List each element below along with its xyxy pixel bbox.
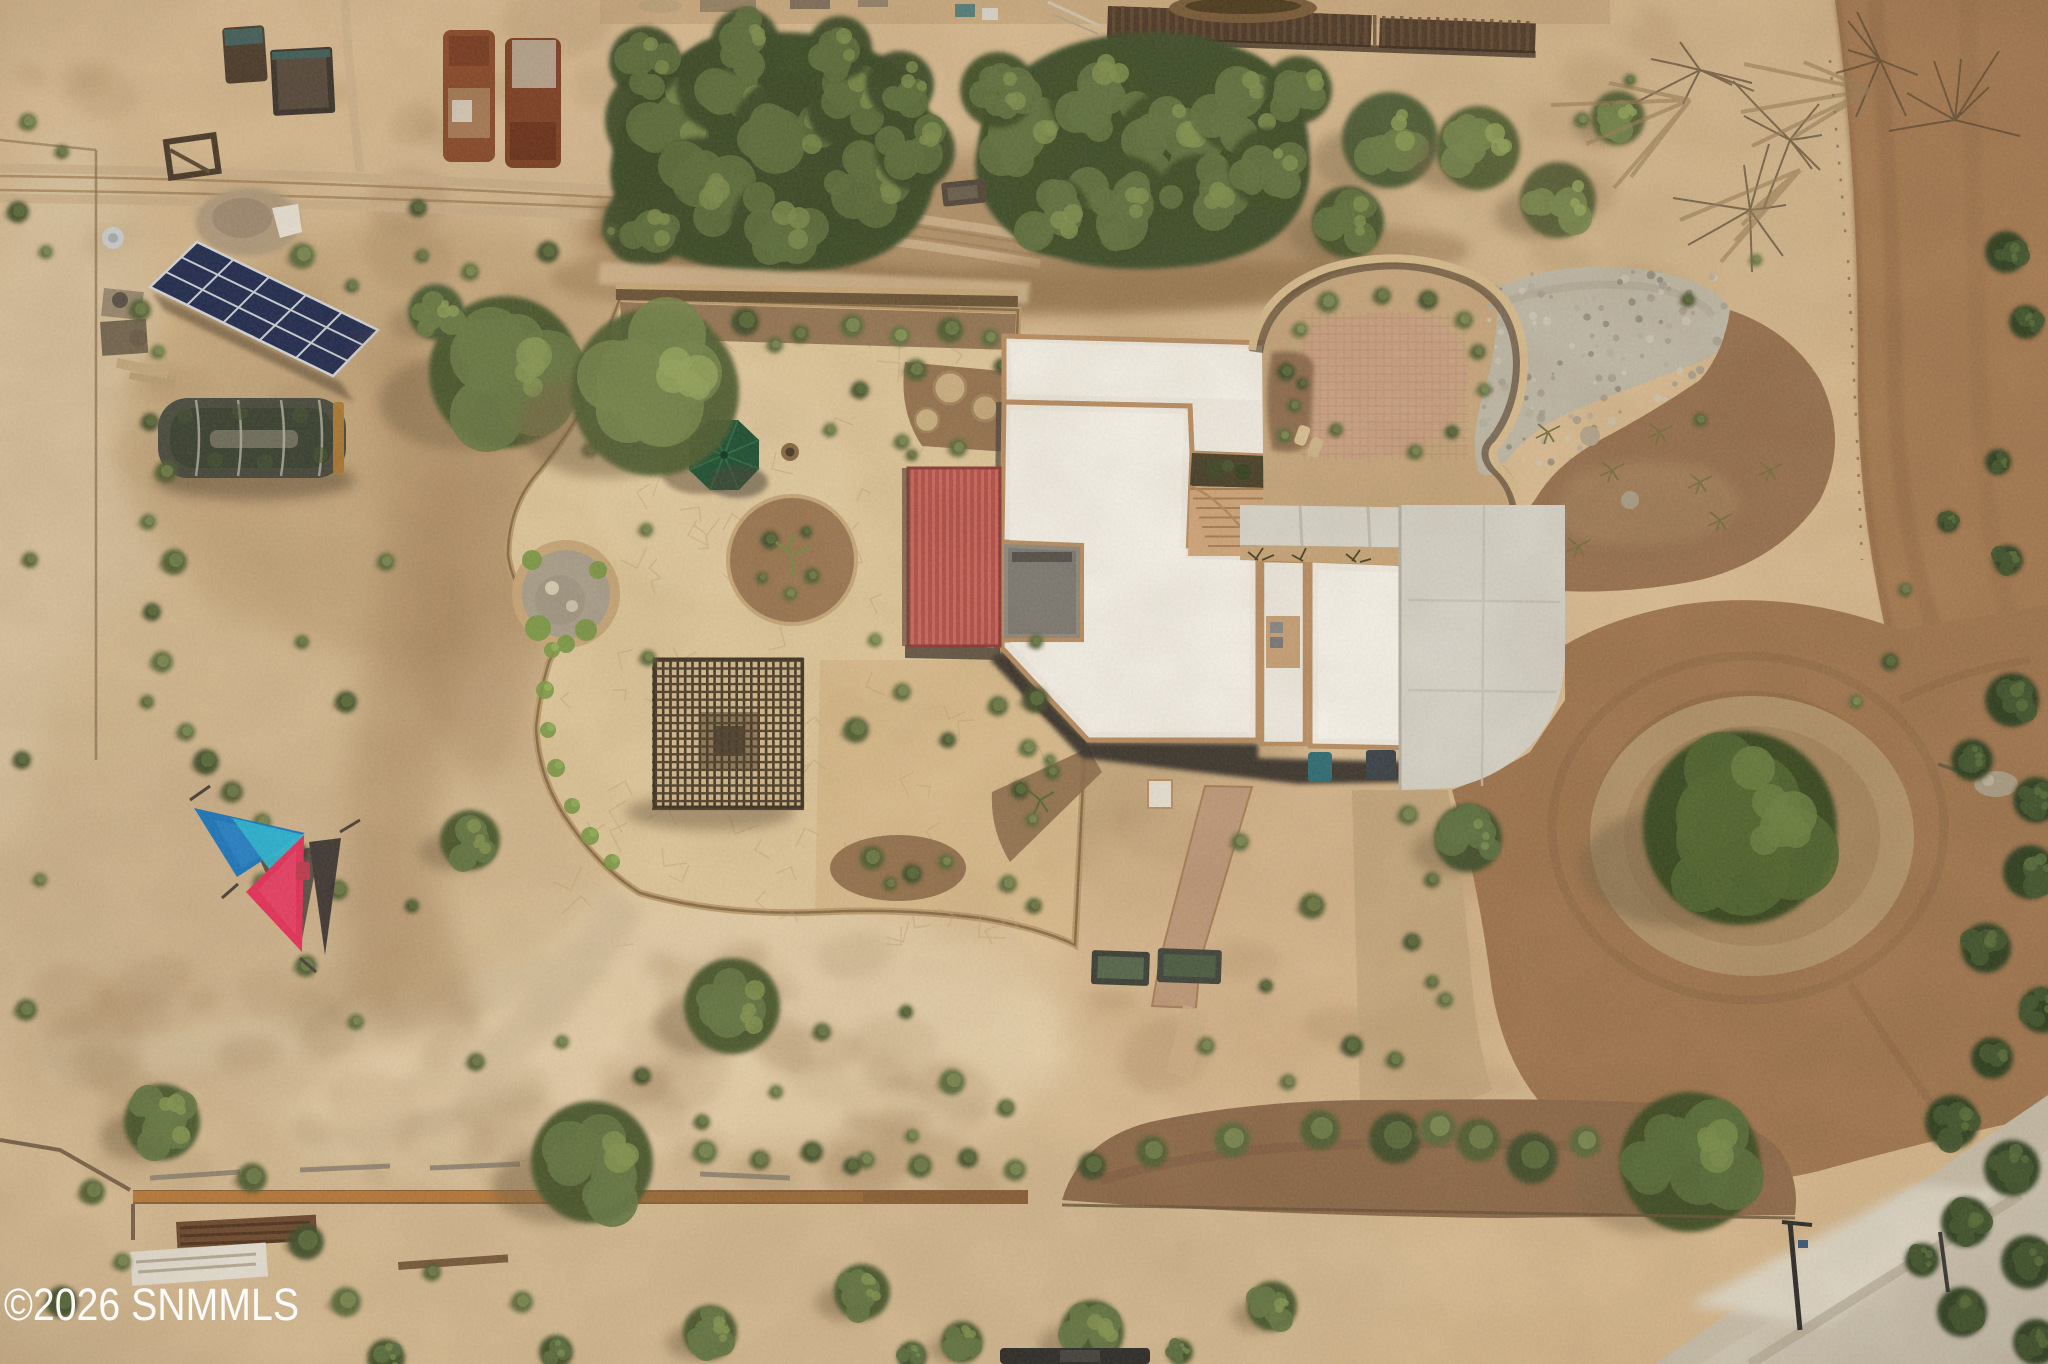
svg-text:©2026 SNMMLS: ©2026 SNMMLS [4,1279,299,1330]
